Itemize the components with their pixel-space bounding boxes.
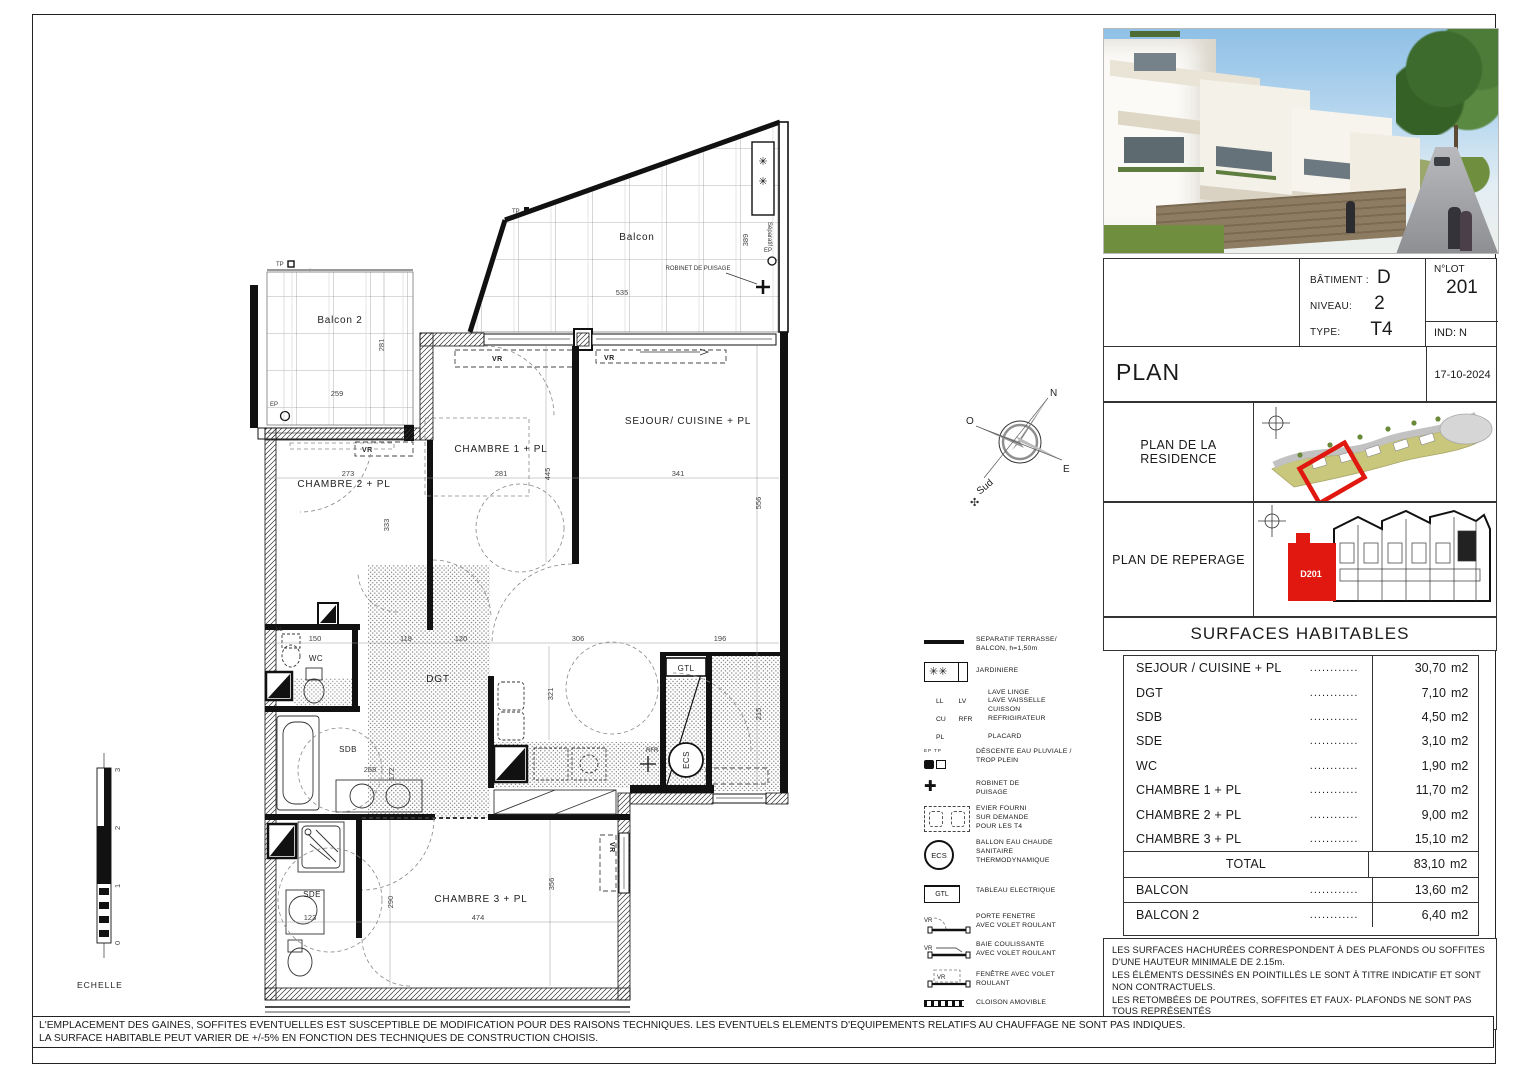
gtl-label: GTL	[678, 664, 695, 673]
balcony-main: ✳ ✳ Séparatif EP ROBINET DE PUISAGE Balc…	[470, 122, 788, 332]
dim-ch3-h: 356	[547, 878, 556, 891]
robinet-symbol: ✚	[924, 781, 937, 793]
legend-ecs: ECS BALLON EAU CHAUDESANITAIRETHERMODYNA…	[924, 839, 1099, 870]
svg-text:VR: VR	[924, 918, 933, 924]
svg-text:✳: ✳	[758, 156, 767, 168]
dim-ch1-w: 281	[495, 469, 508, 478]
table-row-total: TOTAL83,10m2	[1124, 851, 1478, 876]
table-row: SEJOUR / CUISINE + PL............30,70m2	[1124, 656, 1478, 680]
room-label-ch3: CHAMBRE 3 + PL	[434, 894, 527, 905]
legend-jardiniere: ✳✳ JARDINIERE	[924, 661, 1099, 682]
compass-o: O	[966, 416, 974, 427]
dim-balcon-w: 535	[616, 288, 629, 297]
title-block: BÂTIMENT :D NIVEAU:2 TYPE:T4 N°LOT 201 I…	[1103, 258, 1497, 402]
type-value: T4	[1370, 319, 1392, 341]
ll-tag: LL	[276, 627, 283, 633]
surfaces-header: SURFACES HABITABLES	[1103, 617, 1497, 651]
note-line: LES ÉLÉMENTS DESSINÉS EN POINTILLÉS LE S…	[1112, 970, 1488, 994]
dim-ch2-w: 273	[342, 469, 355, 478]
dim-sej-w: 341	[672, 469, 685, 478]
room-label-sdb: SDB	[339, 745, 357, 754]
room-label-wc: WC	[309, 654, 323, 663]
residence-compass	[1262, 407, 1290, 439]
separatif-line-symbol	[924, 640, 964, 644]
room-label-balcon: Balcon	[619, 232, 654, 243]
reperage-compass	[1258, 505, 1286, 537]
fenetre-symbol: VR	[924, 968, 972, 988]
descente-ep-symbol: EP TP	[924, 749, 946, 773]
type-label: TYPE:	[1310, 327, 1340, 338]
residence-panel-label: PLAN DE LA RESIDENCE	[1104, 403, 1254, 501]
robinet-annotation: ROBINET DE PUISAGE	[666, 266, 731, 272]
note-line: LES RETOMBÉES DE POUTRES, SOFFITES ET FA…	[1112, 995, 1488, 1019]
baie-symbol: VR	[924, 942, 972, 960]
surfaces-table: SEJOUR / CUISINE + PL............30,70m2…	[1123, 655, 1479, 936]
dim-ch3-l: 290	[386, 896, 395, 909]
table-row: CHAMBRE 1 + PL............11,70m2	[1124, 778, 1478, 802]
vr-label-1: VR	[492, 356, 503, 363]
residence-panel: PLAN DE LA RESIDENCE	[1103, 402, 1497, 502]
dim-b2-w: 259	[331, 389, 344, 398]
tp-label: TP	[512, 209, 520, 215]
room-label-ch1: CHAMBRE 1 + PL	[454, 444, 547, 455]
legend-separatif: SEPARATIF TERRASSE/BALCON, h=1,50m	[924, 636, 1099, 654]
svg-text:✳: ✳	[758, 176, 767, 188]
dim-b2-h: 281	[377, 339, 386, 352]
sheet-title: PLAN	[1116, 359, 1180, 386]
dim-ch3-w: 474	[472, 913, 485, 922]
legend-evier: EVIER FOURNISUR DEMANDEPOUR LES T4	[924, 805, 1099, 832]
bottom-disclaimer: L'EMPLACEMENT DES GAINES, SOFFITES EVENT…	[32, 1016, 1494, 1048]
niveau-label: NIVEAU:	[1310, 301, 1352, 312]
room-label-sejour: SEJOUR/ CUISINE + PL	[625, 416, 751, 427]
reperage-map: D201	[1254, 503, 1498, 616]
legend-porte-fenetre: VR PORTE FENETREAVEC VOLET ROULANT	[924, 913, 1099, 934]
dim-kitchen: 321	[546, 688, 555, 701]
batiment-label: BÂTIMENT :	[1310, 275, 1369, 286]
table-row: SDE............3,10m2	[1124, 729, 1478, 753]
surfaces-title: SURFACES HABITABLES	[1191, 624, 1410, 644]
dim-sdb-h: 172	[387, 768, 396, 781]
table-row: CHAMBRE 2 + PL............9,00m2	[1124, 802, 1478, 826]
compass-e: E	[1063, 464, 1070, 475]
scale-tick-2: 2	[113, 826, 122, 830]
rfr-tag: RFR	[646, 748, 659, 754]
vr-label-2: VR	[604, 355, 615, 362]
balcony-2: TP EP Balcon 2 259 281	[250, 261, 414, 441]
evier-symbol	[924, 806, 970, 832]
table-row-balcon2: BALCON 2............6,40m2	[1124, 902, 1478, 927]
room-label-sde: SDE	[303, 890, 321, 899]
legend: SEPARATIF TERRASSE/BALCON, h=1,50m ✳✳ JA…	[924, 636, 1099, 1041]
unit-tag: D201	[1300, 569, 1322, 579]
batiment-value: D	[1377, 267, 1391, 289]
legend-placard: PL PLACARD	[924, 733, 1099, 742]
dim-sej-h: 556	[754, 497, 763, 510]
legend-descente-ep: EP TP DÉSCENTE EAU PLUVIALE /TROP PLEIN	[924, 748, 1099, 773]
room-label-dgt: DGT	[426, 674, 450, 685]
jardiniere-symbol: ✳✳	[924, 662, 968, 682]
table-row: DGT............7,10m2	[1124, 680, 1478, 704]
floor-plan-drawing: ✳ ✳ Séparatif EP ROBINET DE PUISAGE Balc…	[0, 0, 930, 1080]
dim-ch1-h: 445	[543, 468, 552, 481]
table-row-balcon: BALCON............13,60m2	[1124, 877, 1478, 902]
dim-ch2-h: 333	[382, 519, 391, 532]
svg-text:VR: VR	[937, 975, 946, 981]
reperage-panel: PLAN DE REPERAGE D201	[1103, 502, 1497, 617]
disclaimer-line-1: L'EMPLACEMENT DES GAINES, SOFFITES EVENT…	[39, 1020, 1487, 1033]
table-row: CHAMBRE 3 + PL............15,10m2	[1124, 827, 1478, 851]
ep-label-2: EP	[270, 402, 278, 408]
sheet-date: 17-10-2024	[1426, 347, 1498, 403]
legend-gtl: GTL TABLEAU ELECTRIQUE	[924, 884, 1099, 903]
compass-n: N	[1050, 388, 1057, 399]
ind-value: IND: N	[1426, 321, 1498, 347]
porte-fenetre-symbol: VR	[924, 914, 972, 934]
scale-tick-0: 0	[113, 941, 122, 945]
residence-map	[1254, 403, 1498, 501]
lot-value: 201	[1426, 277, 1498, 299]
ecs-label: ECS	[682, 751, 691, 769]
room-label-ch2: CHAMBRE 2 + PL	[297, 479, 390, 490]
dim-dgt-a: 119	[400, 634, 412, 643]
ep-label: EP	[764, 248, 772, 254]
legend-abbreviations: LL LV CU RFR LAVE LINGE LAVE VAISSELLE C…	[924, 689, 1099, 726]
niveau-value: 2	[1374, 293, 1385, 315]
table-row: SDB............4,50m2	[1124, 705, 1478, 729]
disclaimer-line-2: LA SURFACE HABITABLE PEUT VARIER DE +/-5…	[39, 1033, 1487, 1046]
right-wall	[780, 332, 788, 793]
residence-photo	[1103, 28, 1499, 254]
tp-label-2: TP	[276, 262, 284, 268]
dim-entry-h: 215	[754, 708, 763, 721]
svg-text:VR: VR	[924, 946, 933, 952]
svg-text:✣: ✣	[970, 497, 979, 509]
dim-entry-w: 196	[714, 634, 727, 643]
room-label-balcon2: Balcon 2	[317, 315, 362, 326]
table-row: WC............1,90m2	[1124, 754, 1478, 778]
compass-s: Sud	[975, 477, 996, 497]
scale-bar: 3 2 1 0 ECHELLE	[77, 753, 123, 990]
cloison-symbol	[924, 1000, 964, 1007]
note-line: LES SURFACES HACHURÉES CORRESPONDENT À D…	[1112, 945, 1488, 969]
scale-tick-1: 1	[113, 884, 122, 888]
dim-dgt-c: 306	[572, 634, 585, 643]
unit-highlight	[1288, 533, 1336, 601]
dim-dgt-b: 120	[455, 634, 468, 643]
gtl-symbol: GTL	[924, 885, 960, 903]
plan-sheet: { "title_block": { "batiment_label": "BÂ…	[0, 0, 1527, 1080]
compass-rose: N O E Sud ✣	[962, 380, 1082, 510]
dim-sdb-w: 268	[364, 765, 377, 774]
dim-sde-w: 123	[304, 913, 317, 922]
dim-wc-w: 150	[309, 634, 322, 643]
legend-fenetre: VR FENÊTRE AVEC VOLETROULANT	[924, 967, 1099, 989]
ecs-symbol: ECS	[924, 840, 954, 870]
lot-label: N°LOT	[1426, 259, 1498, 275]
legend-cloison: CLOISON AMOVIBLE	[924, 996, 1099, 1008]
vr-label-4: VR	[608, 842, 615, 853]
legend-baie: VR BAIE COULISSANTEAVEC VOLET ROULANT	[924, 941, 1099, 960]
dim-balcon-h: 389	[741, 234, 750, 247]
separatif-label: Séparatif	[766, 222, 772, 246]
ch3-window: VR	[600, 833, 629, 893]
legend-robinet: ✚ ROBINET DEPUISAGE	[924, 780, 1099, 798]
scale-tick-3: 3	[113, 768, 122, 772]
reperage-panel-label: PLAN DE REPERAGE	[1104, 503, 1254, 616]
scale-label: ECHELLE	[77, 980, 123, 990]
